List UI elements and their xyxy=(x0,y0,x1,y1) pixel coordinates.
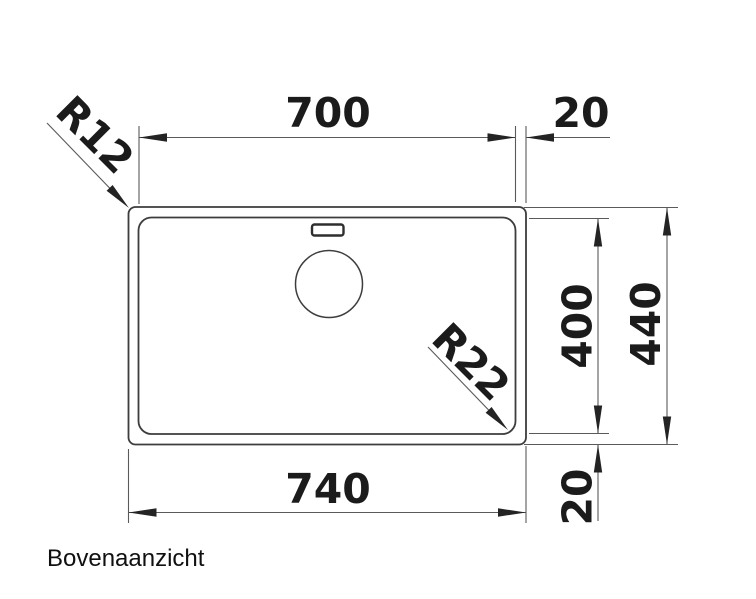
dim-label-740: 740 xyxy=(285,465,371,513)
radius-label-r12: R12 xyxy=(47,87,144,184)
arrowhead-700-right xyxy=(488,133,516,141)
dim-label-20-top: 20 xyxy=(552,89,609,137)
dimension-700: 700 xyxy=(139,89,516,142)
arrowhead-r22 xyxy=(486,407,508,430)
overflow-slot xyxy=(312,225,344,236)
arrowhead-r12 xyxy=(107,185,129,208)
arrowhead-400-bottom xyxy=(594,406,602,434)
technical-drawing-canvas: 700 20 740 400 440 xyxy=(0,0,756,599)
dimension-740: 740 xyxy=(129,465,527,517)
arrowhead-740-right xyxy=(498,508,526,516)
radius-callout-r22: R22 xyxy=(423,314,520,430)
arrowhead-400-top xyxy=(594,219,602,247)
dim-label-20-bottom: 20 xyxy=(554,468,602,525)
dimension-20-top: 20 xyxy=(526,89,610,142)
dimension-20-bottom: 20 xyxy=(554,445,603,526)
arrowhead-20-top xyxy=(526,133,554,141)
arrowhead-700-left xyxy=(139,133,167,141)
view-caption: Bovenaanzicht xyxy=(47,545,205,572)
dim-label-440: 440 xyxy=(622,281,670,367)
arrowhead-20-bottom xyxy=(594,445,602,473)
dimension-440: 440 xyxy=(622,208,671,445)
dim-label-400: 400 xyxy=(554,283,602,369)
arrowhead-440-bottom xyxy=(663,417,671,445)
radius-label-r22: R22 xyxy=(423,314,520,411)
sink-top-view-drawing: 700 20 740 400 440 xyxy=(0,0,756,599)
drain-hole xyxy=(296,251,363,318)
arrowhead-740-left xyxy=(129,508,157,516)
arrowhead-440-top xyxy=(663,208,671,236)
radius-callout-r12: R12 xyxy=(47,87,144,208)
dim-label-700: 700 xyxy=(285,89,371,137)
dimension-400: 400 xyxy=(554,219,603,434)
